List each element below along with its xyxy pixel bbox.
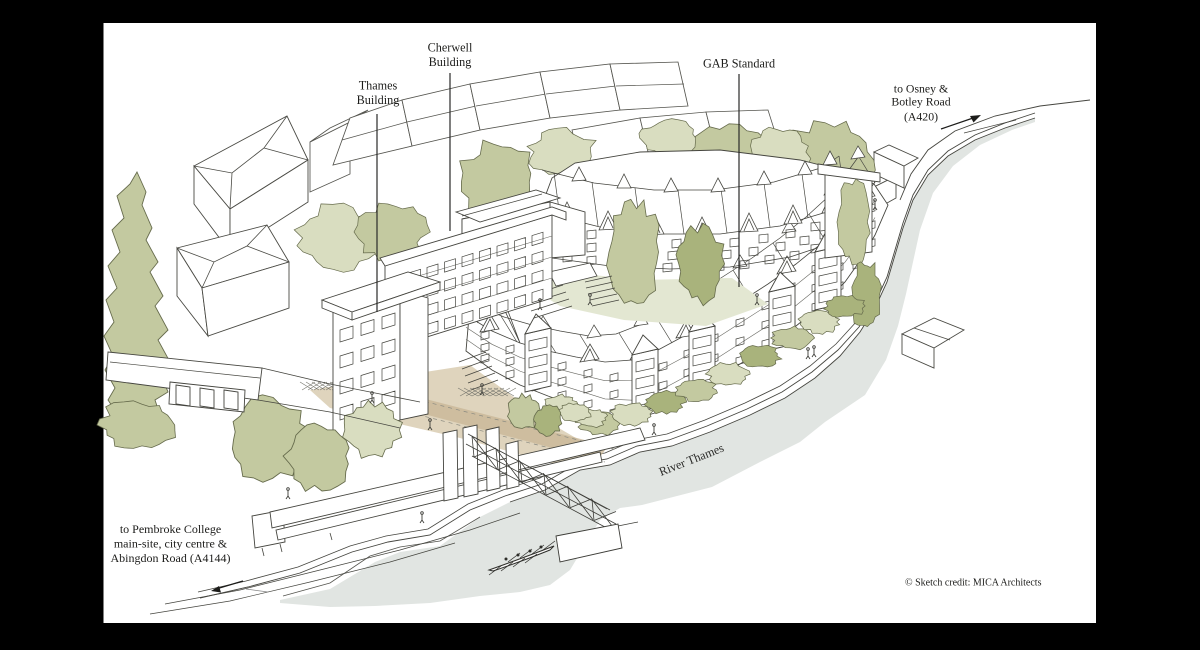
svg-text:Building: Building	[357, 93, 400, 107]
svg-text:(A420): (A420)	[904, 109, 938, 123]
svg-text:Cherwell: Cherwell	[428, 41, 473, 55]
svg-text:Thames: Thames	[359, 79, 398, 93]
svg-text:© Sketch credit: MICA Architec: © Sketch credit: MICA Architects	[905, 578, 1042, 589]
svg-text:to Pembroke College: to Pembroke College	[120, 522, 221, 536]
svg-text:GAB Standard: GAB Standard	[703, 57, 775, 71]
svg-text:to Osney &: to Osney &	[894, 81, 948, 95]
svg-text:Building: Building	[429, 55, 472, 69]
svg-text:Botley Road: Botley Road	[891, 95, 950, 109]
svg-text:main-site, city centre &: main-site, city centre &	[114, 537, 228, 551]
svg-text:Abingdon Road (A4144): Abingdon Road (A4144)	[111, 551, 231, 565]
